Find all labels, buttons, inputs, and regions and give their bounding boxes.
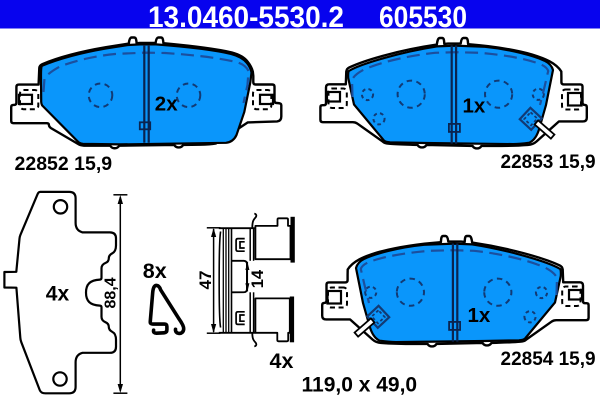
svg-text:4x: 4x <box>46 283 70 306</box>
svg-text:1x: 1x <box>468 304 491 327</box>
svg-text:1x: 1x <box>463 95 486 118</box>
svg-text:88,4: 88,4 <box>103 277 120 308</box>
svg-text:2x: 2x <box>155 92 178 115</box>
svg-text:47: 47 <box>196 271 215 290</box>
svg-text:22853 15,9: 22853 15,9 <box>501 152 596 173</box>
svg-text:22852 15,9: 22852 15,9 <box>15 153 113 175</box>
svg-text:8x: 8x <box>143 259 167 283</box>
svg-text:14: 14 <box>249 269 267 288</box>
svg-text:13.0460-5530.2: 13.0460-5530.2 <box>148 1 344 34</box>
svg-text:4x: 4x <box>270 349 294 373</box>
svg-text:22854 15,9: 22854 15,9 <box>501 349 596 370</box>
svg-text:605530: 605530 <box>379 1 467 34</box>
svg-text:119,0 x 49,0: 119,0 x 49,0 <box>302 373 418 396</box>
